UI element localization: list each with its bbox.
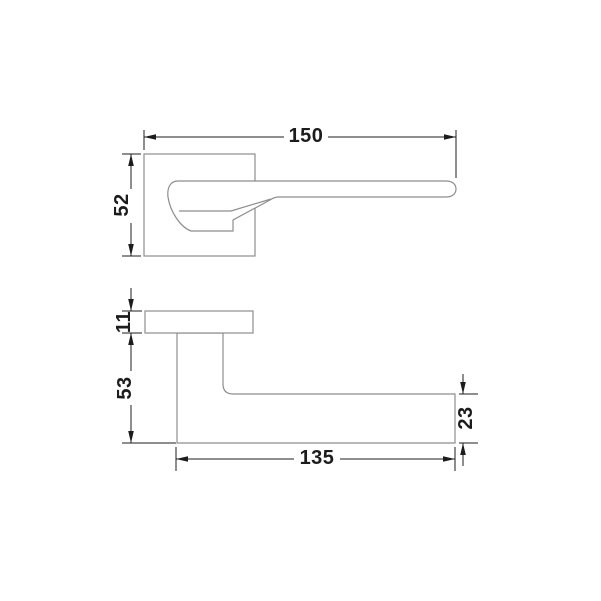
dim-label-side-lever-length: 135 xyxy=(300,448,335,468)
arrow-up xyxy=(128,333,134,345)
dim-label-side-drop-height: 53 xyxy=(115,376,135,399)
drawing-svg xyxy=(0,0,601,601)
front-lever-outline xyxy=(168,181,456,231)
arrow-down xyxy=(460,382,466,394)
arrow-left xyxy=(144,134,156,140)
dim-label-side-lever-thickness: 23 xyxy=(456,406,476,429)
side-lever-outline xyxy=(177,333,455,443)
arrow-down xyxy=(128,299,134,311)
front-view xyxy=(144,154,456,256)
side-rosette-outline xyxy=(145,311,253,333)
arrow-up xyxy=(460,443,466,455)
dim-label-front-rosette-height: 52 xyxy=(112,193,132,216)
arrow-right xyxy=(444,134,456,140)
arrow-down xyxy=(128,244,134,256)
side-view xyxy=(145,311,455,443)
arrow-left xyxy=(176,456,188,462)
arrow-down xyxy=(128,431,134,443)
arrow-right xyxy=(443,456,455,462)
arrow-up xyxy=(128,154,134,166)
dim-label-side-rosette-thickness: 11 xyxy=(114,311,134,333)
technical-drawing-page: 150 52 11 53 135 23 xyxy=(0,0,601,601)
dim-label-front-overall-length: 150 xyxy=(289,126,324,146)
